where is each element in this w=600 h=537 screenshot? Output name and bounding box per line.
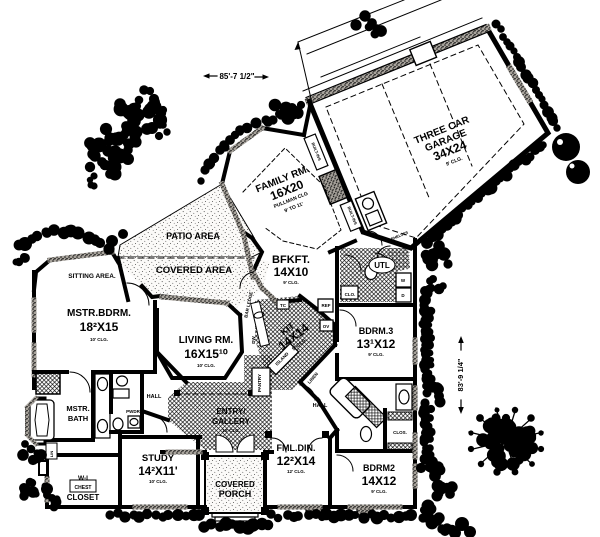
svg-text:LIVING RM.: LIVING RM. [179, 335, 234, 346]
svg-text:TC: TC [280, 303, 287, 308]
svg-text:9' CLG.: 9' CLG. [283, 280, 299, 285]
svg-text:9' CLG.: 9' CLG. [371, 489, 387, 494]
svg-text:13' CLG.: 13' CLG. [222, 428, 240, 433]
svg-text:CLO.: CLO. [345, 292, 356, 297]
svg-text:BDRM.3: BDRM.3 [359, 326, 394, 336]
svg-text:16X15¹⁰: 16X15¹⁰ [184, 347, 228, 361]
svg-text:COVERED: COVERED [215, 480, 255, 489]
svg-text:UTL: UTL [374, 261, 390, 270]
svg-text:STUDY: STUDY [142, 453, 175, 464]
svg-text:PATIO AREA: PATIO AREA [166, 231, 220, 241]
svg-text:14X10: 14X10 [274, 265, 309, 279]
svg-text:83'-9 1/4": 83'-9 1/4" [456, 358, 465, 391]
svg-text:OV: OV [323, 324, 330, 329]
svg-text:W-I: W-I [78, 475, 88, 482]
svg-text:LIN: LIN [49, 451, 54, 458]
svg-text:18²X15: 18²X15 [80, 320, 119, 334]
svg-text:ENTRY/: ENTRY/ [216, 407, 246, 416]
svg-text:FML.DIN.: FML.DIN. [277, 443, 316, 453]
svg-text:CLOS.: CLOS. [393, 430, 407, 435]
svg-text:CHEST: CHEST [75, 485, 92, 491]
svg-text:COVERED AREA: COVERED AREA [156, 265, 232, 276]
svg-text:REF: REF [322, 303, 331, 308]
svg-text:BATH: BATH [68, 414, 88, 423]
svg-text:GALLERY: GALLERY [212, 417, 251, 426]
svg-text:HALL: HALL [313, 403, 328, 409]
svg-text:10' CLG.: 10' CLG. [90, 337, 108, 342]
svg-text:13¹X12: 13¹X12 [357, 337, 396, 351]
svg-text:SITTING AREA.: SITTING AREA. [68, 273, 116, 280]
svg-text:PORCH: PORCH [219, 489, 252, 499]
svg-text:MSTR.: MSTR. [66, 404, 89, 413]
svg-text:BDRM2: BDRM2 [363, 463, 395, 473]
svg-text:9' CLG.: 9' CLG. [368, 352, 384, 357]
svg-text:14²X11': 14²X11' [138, 466, 177, 478]
svg-text:CLOSET: CLOSET [67, 493, 100, 502]
svg-text:HALL: HALL [147, 394, 162, 400]
svg-text:14X12: 14X12 [362, 474, 397, 488]
svg-text:10' CLG.: 10' CLG. [149, 479, 167, 484]
svg-text:12²X14: 12²X14 [277, 454, 316, 468]
svg-text:85'-7 1/2": 85'-7 1/2" [219, 72, 254, 81]
svg-text:DW: DW [251, 336, 256, 344]
svg-text:PWDR: PWDR [126, 409, 140, 414]
svg-text:MSTR.BDRM.: MSTR.BDRM. [67, 308, 131, 319]
svg-text:10' CLG.: 10' CLG. [197, 363, 215, 368]
svg-text:PANTRY: PANTRY [257, 374, 262, 392]
svg-text:12' CLG.: 12' CLG. [287, 469, 305, 474]
